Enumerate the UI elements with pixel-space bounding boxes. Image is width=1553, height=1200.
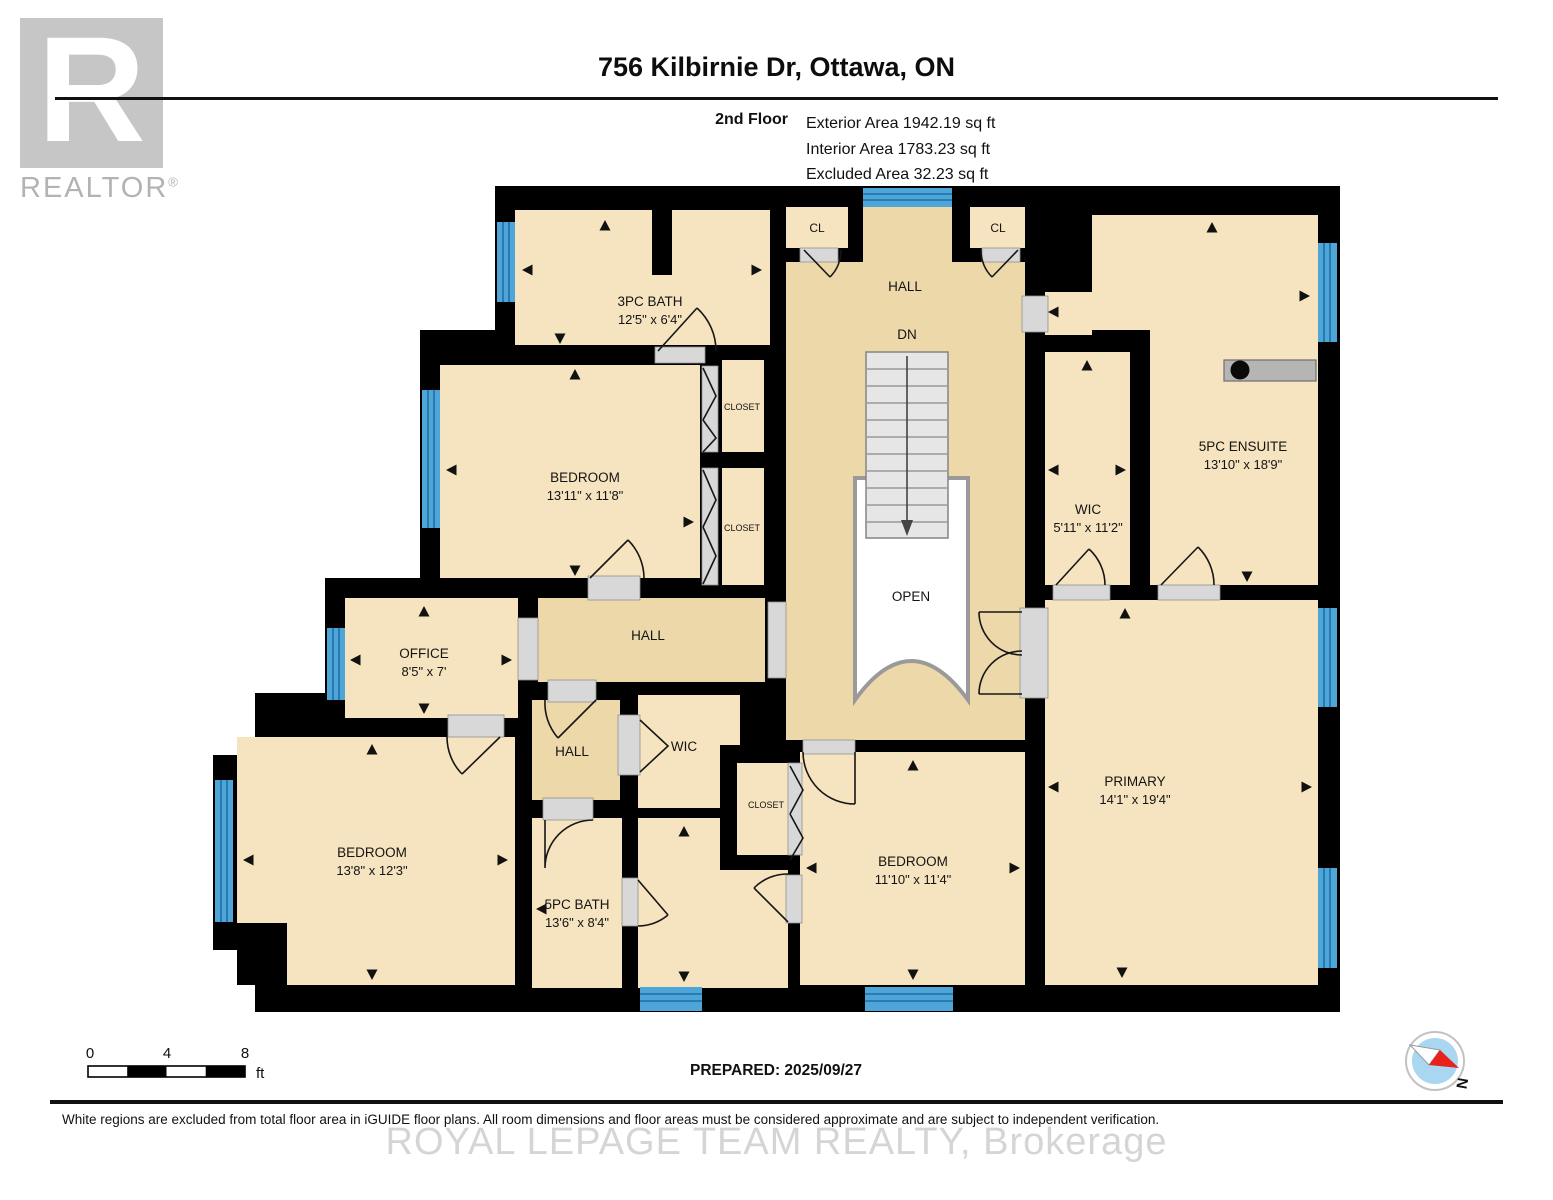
room-hall-small: HALL [555, 744, 589, 759]
floorplan-canvas: 3PC BATH 12'5" x 6'4" BEDROOM 13'11" x 1… [0, 0, 1553, 1200]
room-cl-2: CL [990, 221, 1006, 235]
svg-text:5'11" x 11'2": 5'11" x 11'2" [1053, 520, 1123, 535]
room-wic-small: WIC [671, 739, 697, 754]
room-closet-1: CLOSET [724, 402, 761, 412]
svg-text:HALL: HALL [888, 279, 922, 294]
stairs-dn-label: DN [897, 327, 917, 342]
svg-text:WIC: WIC [1075, 502, 1101, 517]
scale-unit: ft [256, 1065, 265, 1082]
scale-tick-4: 4 [163, 1045, 171, 1062]
scale-tick-8: 8 [241, 1045, 249, 1062]
room-closet-mid: CLOSET [748, 800, 785, 810]
compass: N [1406, 1032, 1471, 1090]
compass-n-label: N [1452, 1076, 1471, 1090]
footer-divider [50, 1100, 1503, 1104]
sink-icon [1231, 361, 1250, 380]
vanity-counter [1224, 360, 1316, 381]
svg-text:14'1" x 19'4": 14'1" x 19'4" [1099, 792, 1171, 807]
prepared-date: PREPARED: 2025/09/27 [690, 1062, 862, 1079]
svg-text:12'5" x 6'4": 12'5" x 6'4" [618, 312, 682, 327]
room-cl-1: CL [809, 221, 825, 235]
svg-text:BEDROOM: BEDROOM [337, 845, 407, 860]
svg-text:13'6" x 8'4": 13'6" x 8'4" [545, 915, 609, 930]
svg-text:PRIMARY: PRIMARY [1104, 774, 1165, 789]
scale-tick-0: 0 [86, 1045, 94, 1062]
svg-text:13'8" x 12'3": 13'8" x 12'3" [336, 863, 408, 878]
svg-text:3PC BATH: 3PC BATH [617, 294, 682, 309]
room-closet-2: CLOSET [724, 523, 761, 533]
svg-text:13'11" x 11'8": 13'11" x 11'8" [547, 488, 624, 503]
svg-text:8'5" x 7': 8'5" x 7' [402, 664, 447, 679]
svg-text:OFFICE: OFFICE [399, 646, 449, 661]
disclaimer-text: White regions are excluded from total fl… [62, 1112, 1502, 1127]
svg-text:11'10" x 11'4": 11'10" x 11'4" [875, 872, 952, 887]
room-hall-mid: HALL [631, 628, 665, 643]
scale-bar: 0 4 8 ft [86, 1045, 265, 1082]
svg-text:BEDROOM: BEDROOM [878, 854, 948, 869]
brokerage-watermark: ROYAL LEPAGE TEAM REALTY, Brokerage [0, 1121, 1553, 1164]
svg-text:5PC BATH: 5PC BATH [544, 897, 609, 912]
stairs-open-label: OPEN [892, 589, 930, 604]
svg-text:5PC ENSUITE: 5PC ENSUITE [1199, 439, 1288, 454]
svg-text:13'10" x 18'9": 13'10" x 18'9" [1204, 457, 1283, 472]
svg-text:BEDROOM: BEDROOM [550, 470, 620, 485]
